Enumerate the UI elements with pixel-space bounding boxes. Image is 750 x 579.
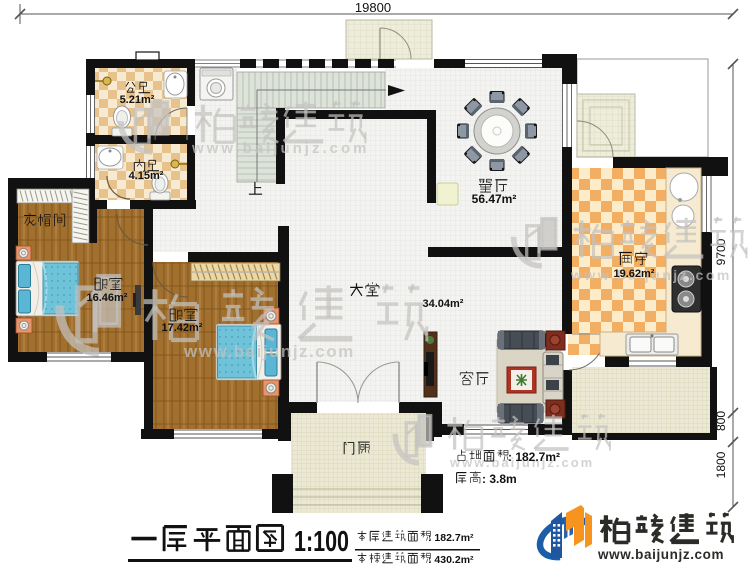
svg-text:17.42m²: 17.42m² [162, 322, 203, 334]
svg-text:5.21m²: 5.21m² [120, 94, 155, 106]
svg-text:: 430.2m²: : 430.2m² [428, 554, 474, 566]
svg-text:: 182.7m²: : 182.7m² [508, 450, 560, 464]
svg-text:56.47m²: 56.47m² [472, 192, 517, 206]
svg-text:16.46m²: 16.46m² [87, 292, 128, 304]
svg-text:1:100: 1:100 [294, 526, 349, 558]
svg-text:www.baijunjz.com: www.baijunjz.com [183, 342, 355, 361]
svg-text:www.baijunjz.com: www.baijunjz.com [191, 140, 369, 157]
svg-text:9700: 9700 [714, 238, 728, 265]
svg-text:: 182.7m²: : 182.7m² [428, 532, 474, 544]
svg-text:: 3.8m: : 3.8m [482, 472, 517, 486]
svg-text:www.baijunjz.com: www.baijunjz.com [597, 547, 724, 562]
svg-text:19800: 19800 [355, 0, 391, 15]
svg-text:1800: 1800 [714, 451, 728, 478]
svg-text:19.62m²: 19.62m² [614, 268, 655, 280]
svg-text:34.04m²: 34.04m² [423, 298, 464, 310]
svg-text:4.15m²: 4.15m² [129, 170, 164, 182]
